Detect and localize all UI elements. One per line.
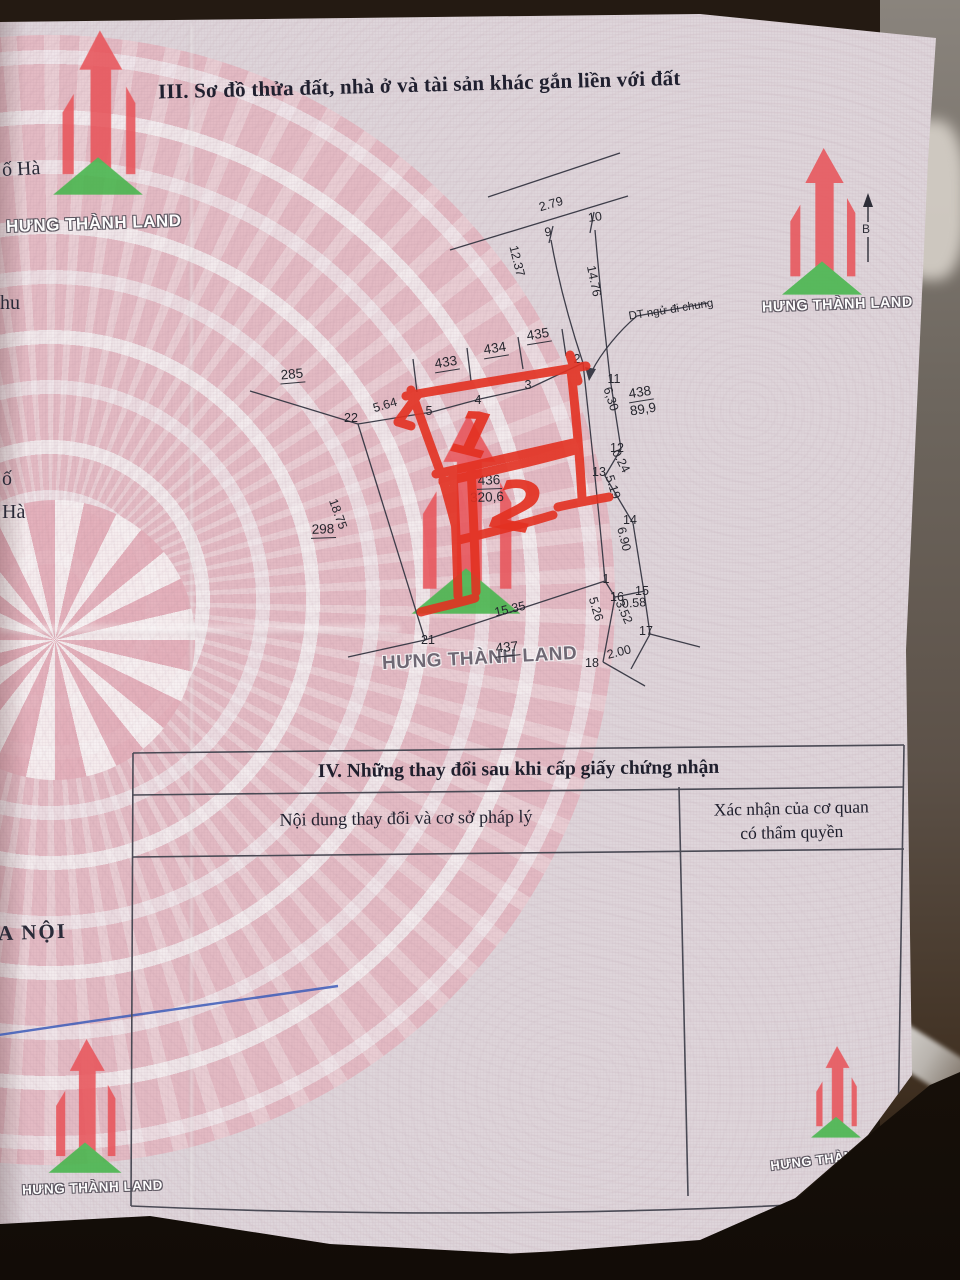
photo-of-land-certificate: { "document": { "section3_title": "III. … <box>0 0 960 1280</box>
section4-table-lines <box>0 0 960 1280</box>
certificate-page: HƯNG THÀNH LAND HƯNG THÀNH LAND HƯNG THÀ… <box>0 0 960 1280</box>
table-col2-header-line2: có thẩm quyền <box>679 818 904 846</box>
table-top-border <box>133 745 904 753</box>
table-col2-header: Xác nhận của cơ quan có thẩm quyền <box>679 795 905 847</box>
table-column-divider <box>679 787 688 1196</box>
